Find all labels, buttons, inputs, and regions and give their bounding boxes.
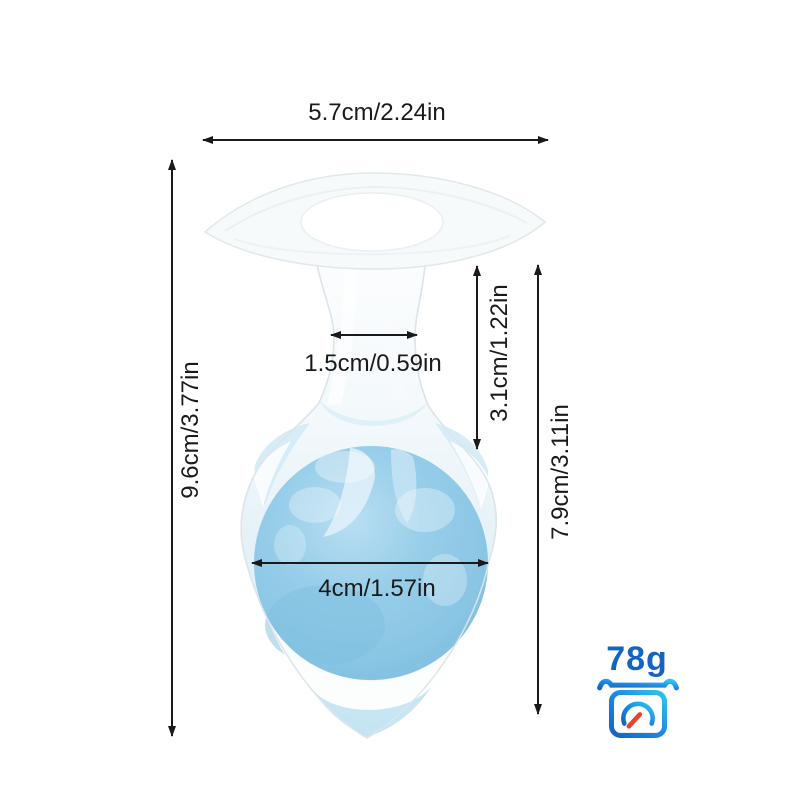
weight-value: 78g [577, 642, 697, 676]
dim-label-lower-height: 7.9cm/3.11in [548, 402, 574, 542]
product-photo [195, 165, 555, 745]
dim-label-neck-width: 1.5cm/0.59in [273, 351, 473, 377]
dim-arrow-top-width [203, 139, 548, 141]
dim-label-ball-diameter: 4cm/1.57in [277, 576, 477, 602]
scale-needle [629, 714, 640, 726]
dim-arrow-neck-width [331, 334, 417, 336]
dim-label-overall-height: 9.6cm/3.77in [178, 360, 204, 500]
dim-arrow-upper-height [476, 266, 478, 449]
dim-arrow-ball-diameter [252, 562, 488, 564]
dim-label-top-width: 5.7cm/2.24in [267, 100, 487, 126]
weighing-scale-icon [595, 676, 681, 740]
dim-arrow-lower-height [537, 265, 539, 714]
dim-label-upper-height: 3.1cm/1.22in [487, 283, 513, 423]
product-dimension-diagram: 5.7cm/2.24in 9.6cm/3.77in 1.5cm/0.59in 3… [0, 0, 800, 800]
dim-arrow-overall-height [171, 160, 173, 736]
